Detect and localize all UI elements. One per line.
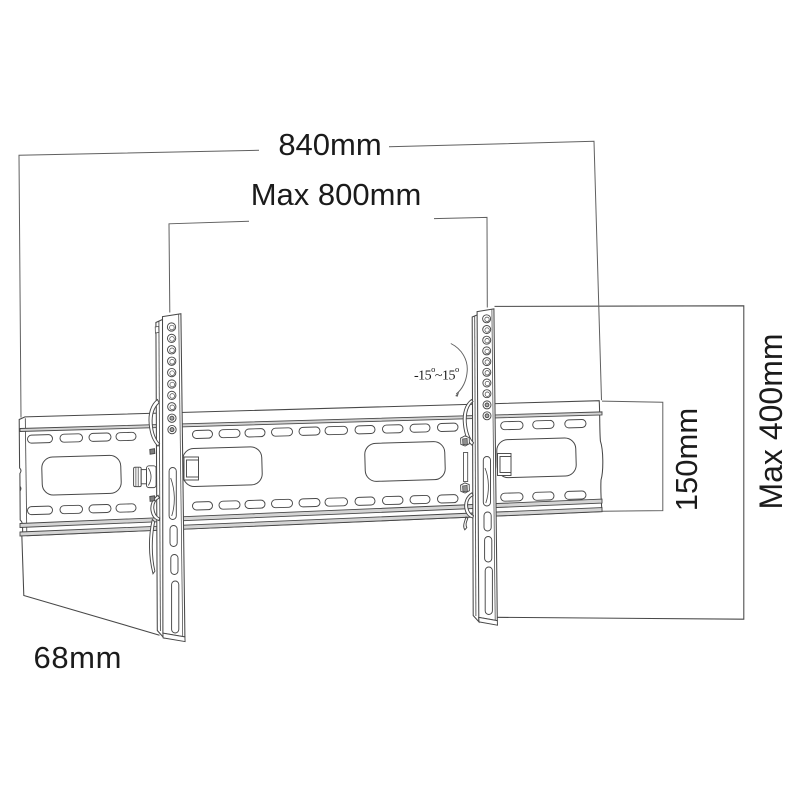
svg-text:840mm: 840mm [278,127,381,162]
svg-text:68mm: 68mm [34,640,123,675]
svg-text:Max 400mm: Max 400mm [753,333,789,509]
svg-text:Max 800mm: Max 800mm [251,177,422,212]
svg-text:150mm: 150mm [669,408,704,511]
